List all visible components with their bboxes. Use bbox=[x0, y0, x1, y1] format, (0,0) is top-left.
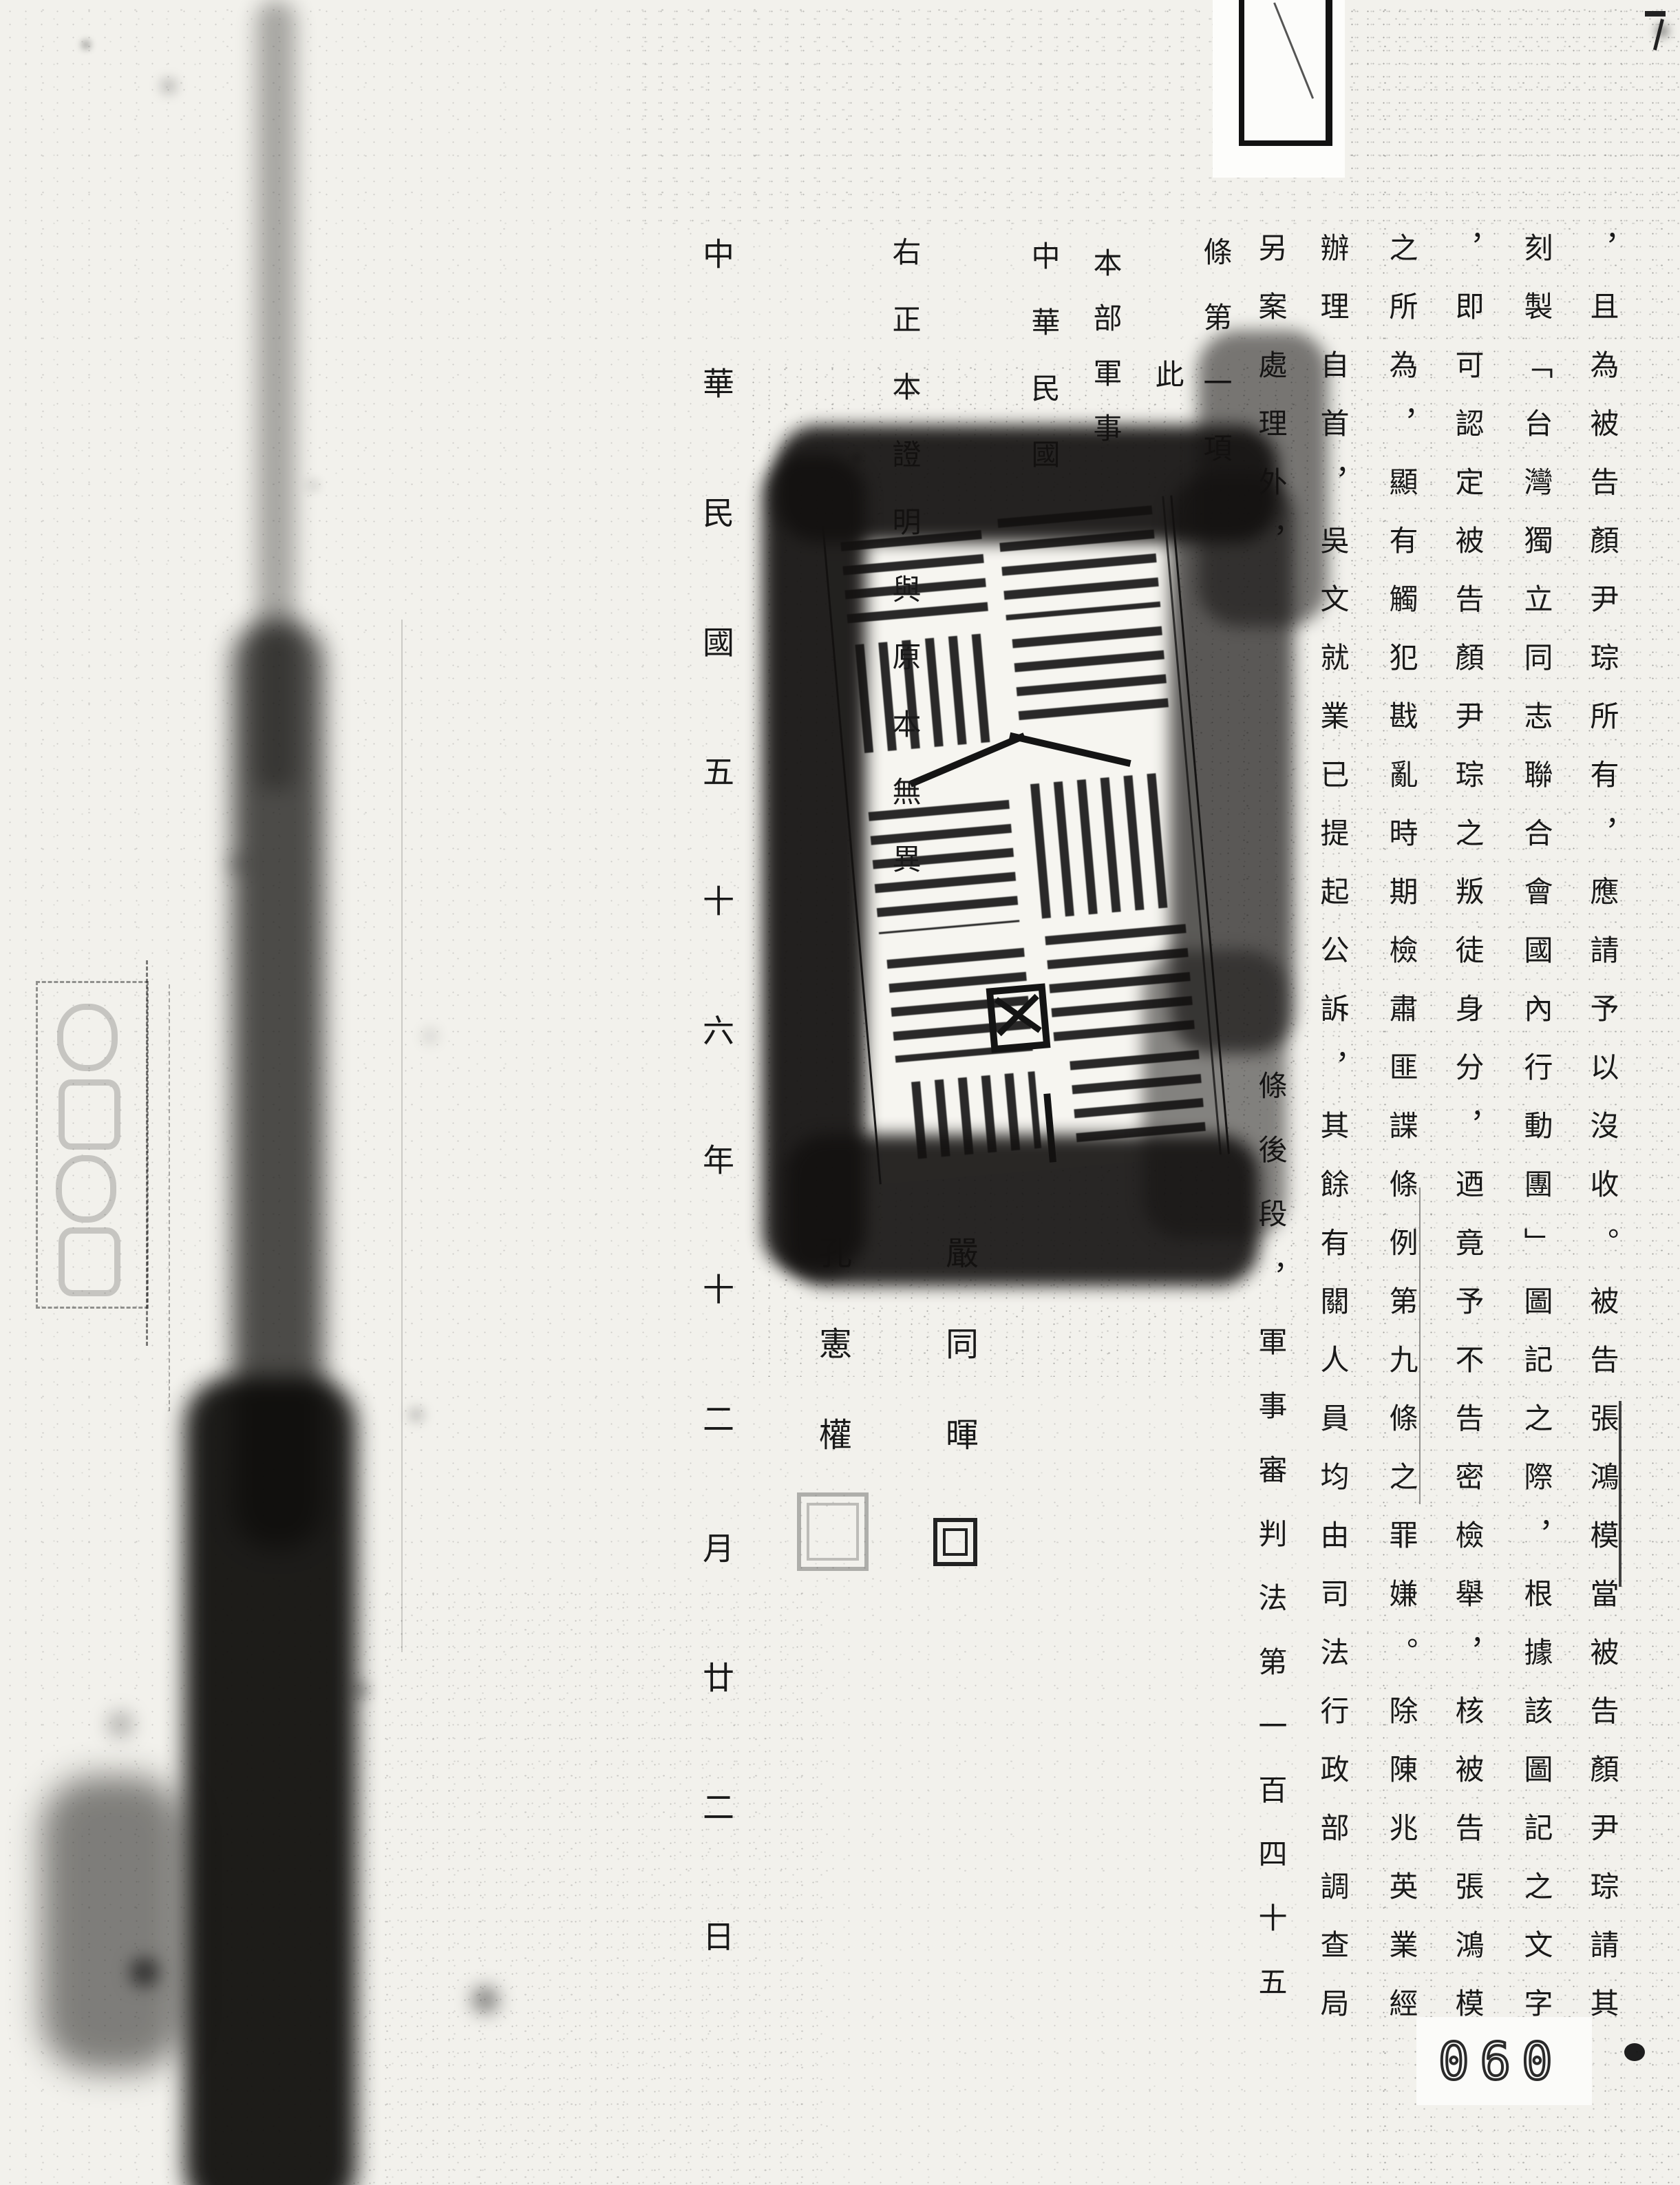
tab-pencil-mark bbox=[1273, 2, 1314, 98]
text-column-c4: 之所為，顯有觸犯戡亂時期檢肅匪諜條例第九條之罪嫌。除陳兆英業經 bbox=[1381, 233, 1423, 2047]
seal-toner-bulge-bottom-right bbox=[1142, 950, 1287, 1239]
seal-triangle-stroke bbox=[1009, 732, 1131, 767]
personal-seal-inner bbox=[807, 1503, 859, 1561]
page-number: 060 bbox=[1438, 2032, 1564, 2091]
text-column-c8: 此 bbox=[1147, 359, 1189, 425]
text-column-c3: ，即可認定被告顏尹琮之叛徒身分，迺竟予不告密檢舉，核被告張鴻模 bbox=[1447, 233, 1489, 2047]
scanned-document-page: 060 ，且為被告顏尹琮所有，應請予以沒收。被告張鴻模當被告顏尹琮請其刻製﹁台灣… bbox=[0, 0, 1680, 2185]
ghost-glyph bbox=[59, 1079, 120, 1150]
toner-band-top bbox=[256, 0, 296, 792]
ghost-glyph bbox=[57, 1004, 118, 1071]
photocopy-noise-midleft bbox=[344, 1583, 826, 2185]
top-edge-tab bbox=[1239, 0, 1332, 146]
ghost-glyph bbox=[56, 1155, 116, 1223]
side-archive-stamp-illegible bbox=[36, 981, 149, 1309]
ink-blotches bbox=[0, 0, 7, 7]
toner-band-middle bbox=[233, 620, 323, 1549]
personal-seal-stamp bbox=[933, 1518, 977, 1566]
seal-script-block bbox=[1012, 626, 1170, 735]
seal-script-block bbox=[855, 633, 1000, 753]
ink-dot bbox=[1624, 2043, 1645, 2061]
toner-band-bottom bbox=[184, 1377, 357, 2185]
toner-smudge-bottom-left bbox=[41, 1776, 186, 2072]
page-number-patch: 060 bbox=[1416, 2017, 1592, 2105]
text-column-c11: 右正本證明與原本無異 bbox=[884, 237, 926, 911]
text-column-c2: 刻製﹁台灣獨立同志聯合會國內行動團﹂圖記之際，根據該圖記之文字 bbox=[1516, 233, 1557, 2047]
fold-line bbox=[401, 620, 403, 1652]
photocopy-noise-top-band bbox=[619, 0, 1680, 227]
seal-x-box-glyph bbox=[986, 983, 1051, 1053]
personal-seal-inner bbox=[943, 1528, 968, 1556]
text-column-c1: ，且為被告顏尹琮所有，應請予以沒收。被告張鴻模當被告顏尹琮請其 bbox=[1582, 233, 1624, 2047]
text-column-date-column: 中華民國五十六年十二月廿二日 bbox=[694, 237, 739, 2049]
ghost-glyph bbox=[59, 1227, 120, 1296]
seal-toner-bulge-top-right bbox=[1198, 330, 1328, 626]
fold-line bbox=[169, 984, 170, 1411]
corner-pen-mark bbox=[1645, 11, 1666, 25]
seal-script-block bbox=[1030, 772, 1179, 919]
corner-pen-mark-tail bbox=[1653, 19, 1664, 50]
